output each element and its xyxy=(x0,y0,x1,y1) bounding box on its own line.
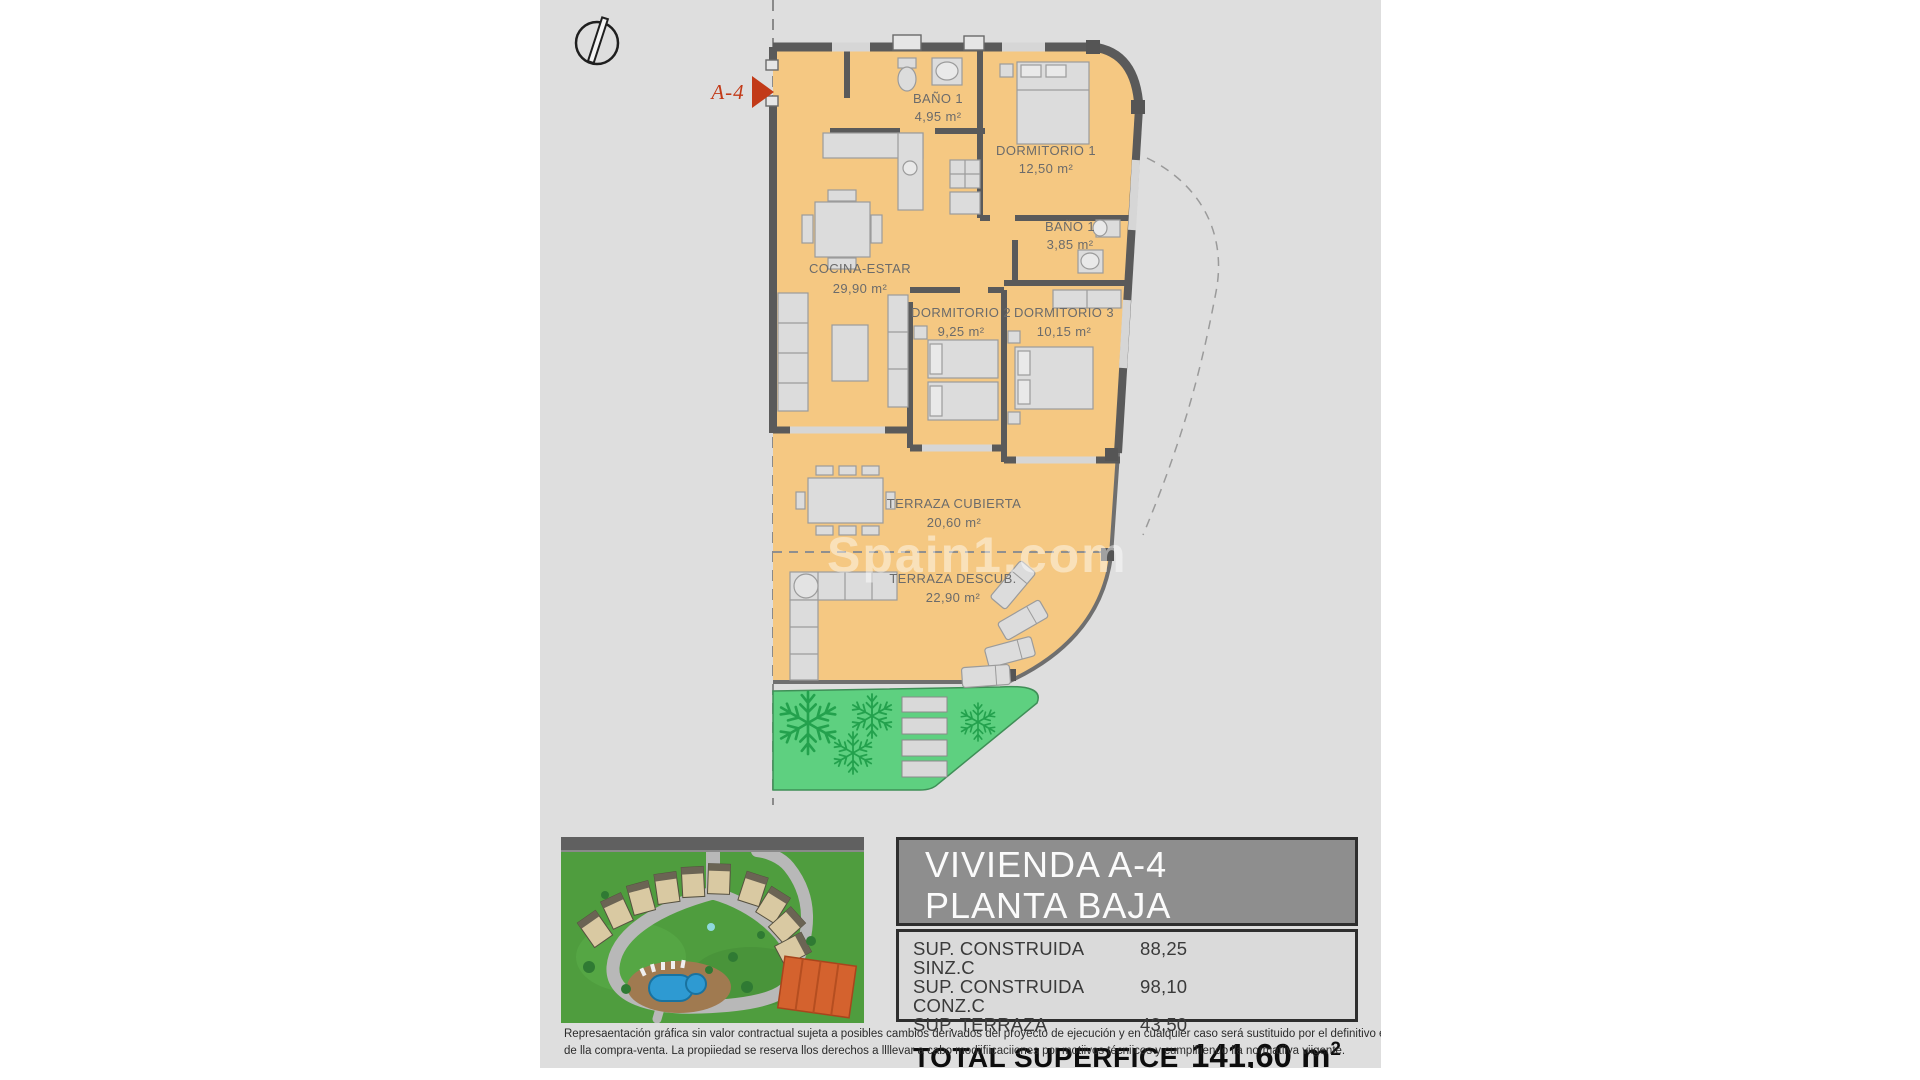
unit-title-line1: VIVIENDA A-4 xyxy=(925,844,1355,885)
surface-value: 88,25 xyxy=(1140,939,1187,977)
surface-label: SUP. CONSTRUIDA SINZ.C xyxy=(913,939,1140,977)
pool-dot xyxy=(707,923,715,931)
room-area: 12,50 m² xyxy=(1019,161,1074,176)
unit-title-box: VIVIENDA A-4 PLANTA BAJA xyxy=(896,837,1358,926)
room-area: 29,90 m² xyxy=(833,281,888,296)
aerial-photo xyxy=(561,837,864,1023)
surface-summary-box: SUP. CONSTRUIDA SINZ.C 88,25 SUP. CONSTR… xyxy=(896,929,1358,1022)
disclaimer-line2: de lla compra-venta. La propiiedad se re… xyxy=(564,1043,1381,1060)
watermark: Spain1.com xyxy=(827,527,1128,583)
room-area: 22,90 m² xyxy=(926,590,981,605)
surface-row: SUP. CONSTRUIDA CONZ.C 98,10 xyxy=(913,977,1341,1015)
room-label: BAÑO 1 xyxy=(913,91,963,106)
room-label: DORMITORIO 2 xyxy=(911,305,1011,320)
entry-marker-label: A-4 xyxy=(709,80,744,104)
plan-sheet: A-4 BAÑO 1 4,95 m² DORMITORIO 1 12,50 m²… xyxy=(540,0,1381,1068)
highlighted-unit xyxy=(778,956,857,1018)
room-area: 10,15 m² xyxy=(1037,324,1092,339)
room-label: TERRAZA CUBIERTA xyxy=(887,496,1022,511)
room-area: 9,25 m² xyxy=(938,324,985,339)
surface-value: 98,10 xyxy=(1140,977,1187,1015)
unit-title-line2: PLANTA BAJA xyxy=(925,885,1355,926)
room-area: 3,85 m² xyxy=(1047,237,1094,252)
page: A-4 BAÑO 1 4,95 m² DORMITORIO 1 12,50 m²… xyxy=(0,0,1920,1080)
room-label: DORMITORIO 3 xyxy=(1014,305,1114,320)
room-label: COCINA-ESTAR xyxy=(809,261,911,276)
plot-boundary-curve xyxy=(1143,158,1219,535)
room-area: 4,95 m² xyxy=(915,109,962,124)
compass-icon xyxy=(576,17,618,64)
room-label: BAÑO 1 xyxy=(1045,219,1095,234)
info-panel: VIVIENDA A-4 PLANTA BAJA SUP. CONSTRUIDA… xyxy=(896,837,1358,1022)
disclaimer: Represaentación gráfica sin valor contra… xyxy=(540,1022,1381,1068)
surface-row: SUP. CONSTRUIDA SINZ.C 88,25 xyxy=(913,939,1341,977)
disclaimer-line1: Represaentación gráfica sin valor contra… xyxy=(564,1026,1381,1043)
surface-label: SUP. CONSTRUIDA CONZ.C xyxy=(913,977,1140,1015)
room-label: DORMITORIO 1 xyxy=(996,143,1096,158)
